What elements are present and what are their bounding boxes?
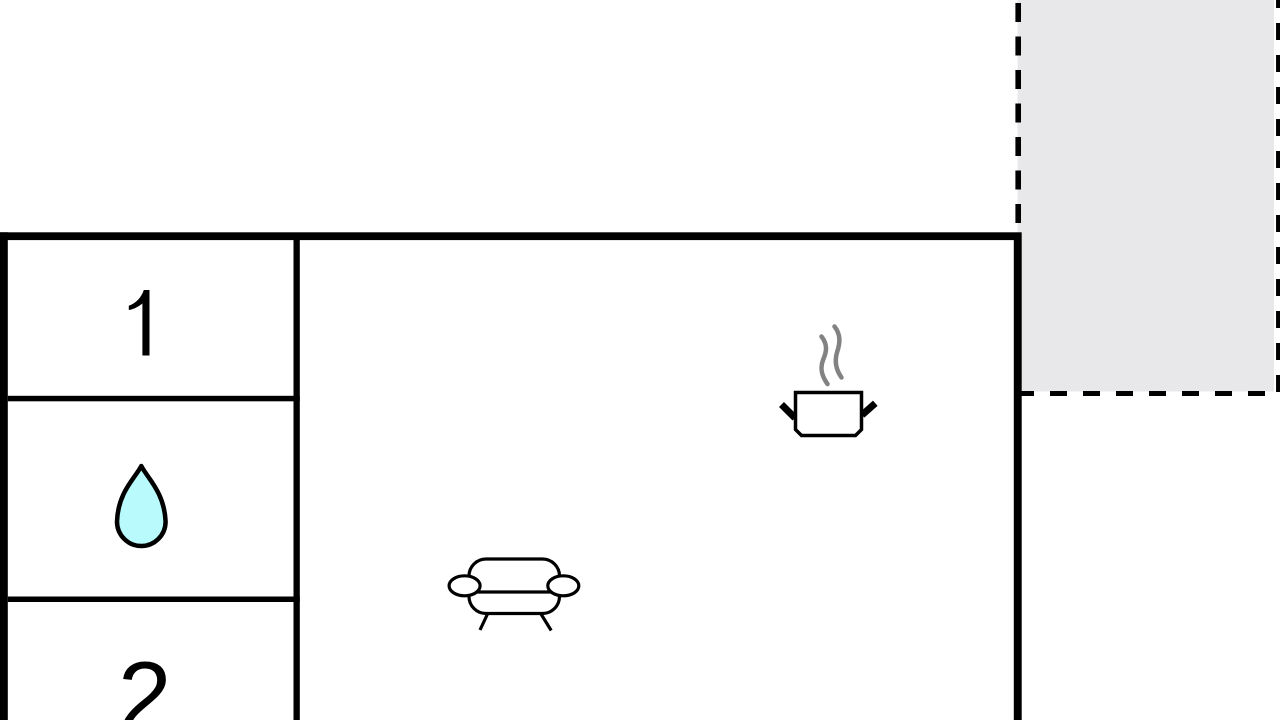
svg-text:2: 2 [118, 641, 172, 720]
